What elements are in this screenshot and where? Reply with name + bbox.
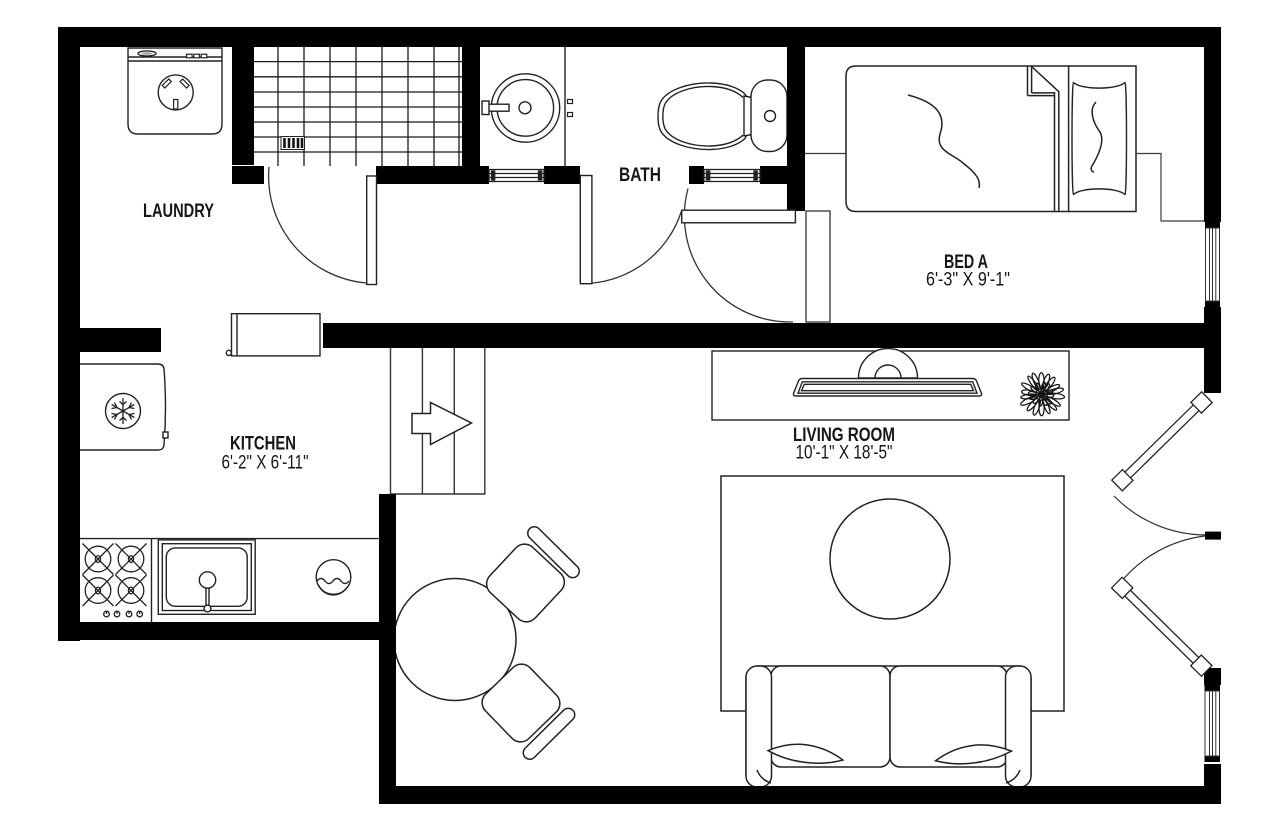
svg-text:BATH: BATH [619, 164, 661, 186]
svg-text:10'-1" X 18'-5": 10'-1" X 18'-5" [796, 443, 893, 464]
svg-text:6'-3" X 9'-1": 6'-3" X 9'-1" [926, 270, 1010, 291]
svg-text:KITCHEN: KITCHEN [230, 433, 296, 455]
svg-text:LAUNDRY: LAUNDRY [143, 200, 214, 222]
svg-text:6'-2" X 6'-11": 6'-2" X 6'-11" [222, 453, 309, 474]
